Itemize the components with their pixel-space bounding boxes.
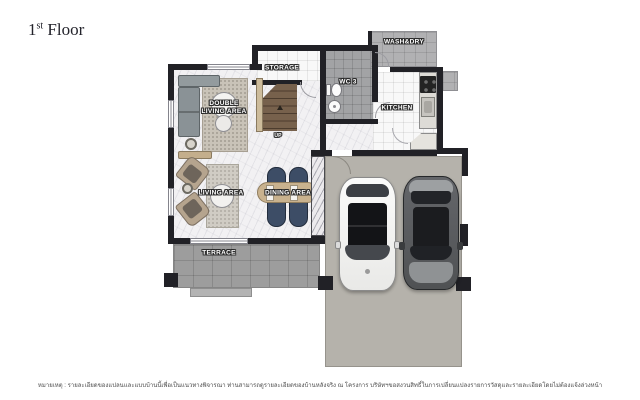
double-living-area-label: DOUBLE LIVING AREA [202, 100, 247, 116]
car-rear-window [411, 191, 451, 204]
wall-segment [168, 128, 174, 188]
title-text: Floor [43, 20, 84, 39]
floor-plan-page: 1st Floor [0, 0, 640, 400]
dining-area-label: DINING AREA [265, 190, 311, 197]
wall-segment [368, 31, 372, 47]
wall-segment [320, 119, 378, 124]
hall-to-garage-floor [325, 124, 373, 150]
wall-segment [168, 64, 174, 100]
car-rear-window [346, 184, 389, 197]
sofa-side-section [178, 87, 200, 137]
stair-direction-arrow [277, 105, 283, 110]
side-yard-tiles [442, 71, 458, 91]
stove [420, 76, 436, 93]
coffee-table-small [215, 115, 232, 132]
kitchen-label: KITCHEN [382, 105, 413, 112]
stairs-up-label: UP [274, 133, 281, 139]
wall-segment [252, 45, 258, 70]
car-mirror [457, 242, 463, 250]
wc3-label: WC 3 [339, 79, 356, 86]
car-mirror [335, 241, 341, 249]
side-table [185, 138, 197, 150]
wall-segment [252, 45, 378, 51]
terrace-floor [173, 244, 320, 288]
sofa-top-section [178, 75, 220, 87]
washdry-label: WASH&DRY [384, 39, 424, 46]
wall-segment [437, 67, 443, 154]
window [168, 188, 174, 216]
white-car [339, 177, 396, 291]
terrace-step [190, 288, 252, 297]
wall-segment [320, 119, 326, 156]
wall-segment [462, 148, 468, 176]
sink-icon [328, 100, 341, 113]
tv-cabinet [256, 78, 263, 132]
storage-label: STORAGE [265, 65, 299, 72]
car-windshield [410, 246, 452, 260]
living-area-label: LIVING AREA [199, 190, 244, 197]
side-table [182, 183, 193, 194]
car-hood [409, 262, 453, 283]
wall-segment [248, 238, 325, 244]
wall-segment [352, 150, 437, 156]
page-title: 1st Floor [28, 20, 84, 40]
car-windshield [345, 245, 390, 260]
column [164, 273, 178, 287]
disclaimer-note: หมายเหตุ : รายละเอียดของแปลนและแบบบ้านนี… [0, 380, 640, 390]
kitchen-sink [421, 97, 435, 117]
window [168, 100, 174, 128]
car-sunroof [348, 203, 387, 249]
car-mirror [399, 242, 405, 250]
marble-feature-wall [311, 156, 325, 236]
sliding-door [190, 238, 248, 244]
column [318, 276, 333, 290]
terrace-label: TERRACE [202, 250, 236, 257]
car-sunroof [413, 207, 449, 249]
wall-segment [372, 67, 376, 72]
car-emblem [365, 269, 370, 274]
window [207, 64, 250, 70]
title-number: 1 [28, 20, 37, 39]
wall-segment [168, 216, 174, 244]
gray-car [403, 176, 459, 290]
